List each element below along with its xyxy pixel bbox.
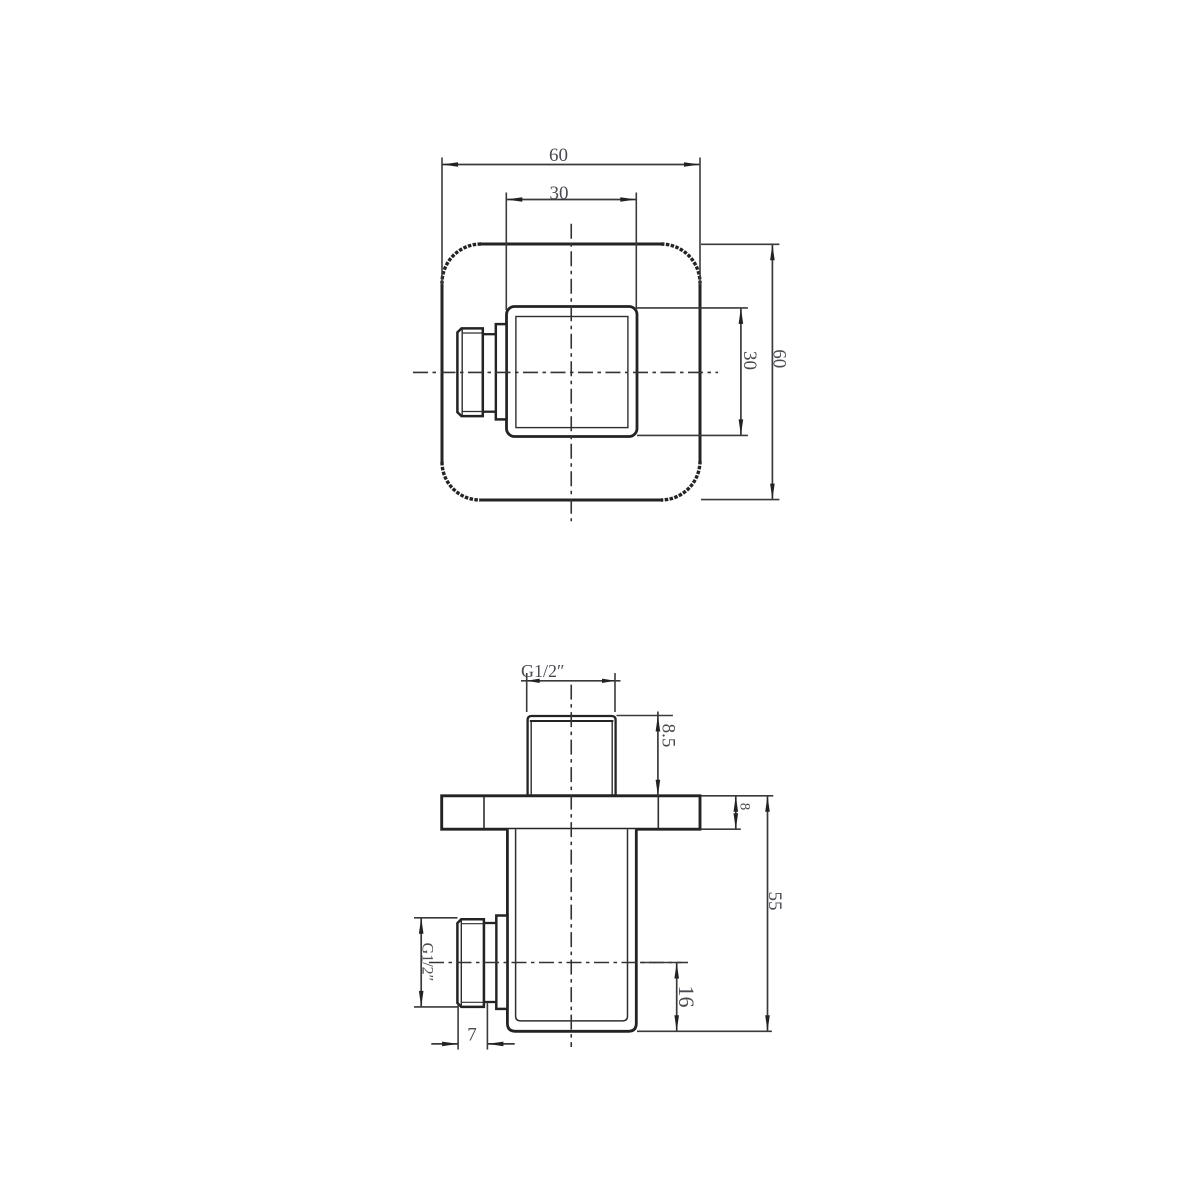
svg-text:8: 8 xyxy=(737,803,753,811)
svg-text:60: 60 xyxy=(549,145,568,166)
svg-text:7: 7 xyxy=(467,1025,477,1046)
svg-text:8.5: 8.5 xyxy=(658,724,679,748)
svg-text:55: 55 xyxy=(764,892,785,911)
svg-text:G1/2″: G1/2″ xyxy=(521,661,565,681)
svg-text:30: 30 xyxy=(739,351,760,370)
svg-text:60: 60 xyxy=(769,349,790,368)
svg-text:30: 30 xyxy=(550,183,569,204)
svg-text:16: 16 xyxy=(674,986,699,1008)
svg-text:G1/2″: G1/2″ xyxy=(419,943,436,982)
